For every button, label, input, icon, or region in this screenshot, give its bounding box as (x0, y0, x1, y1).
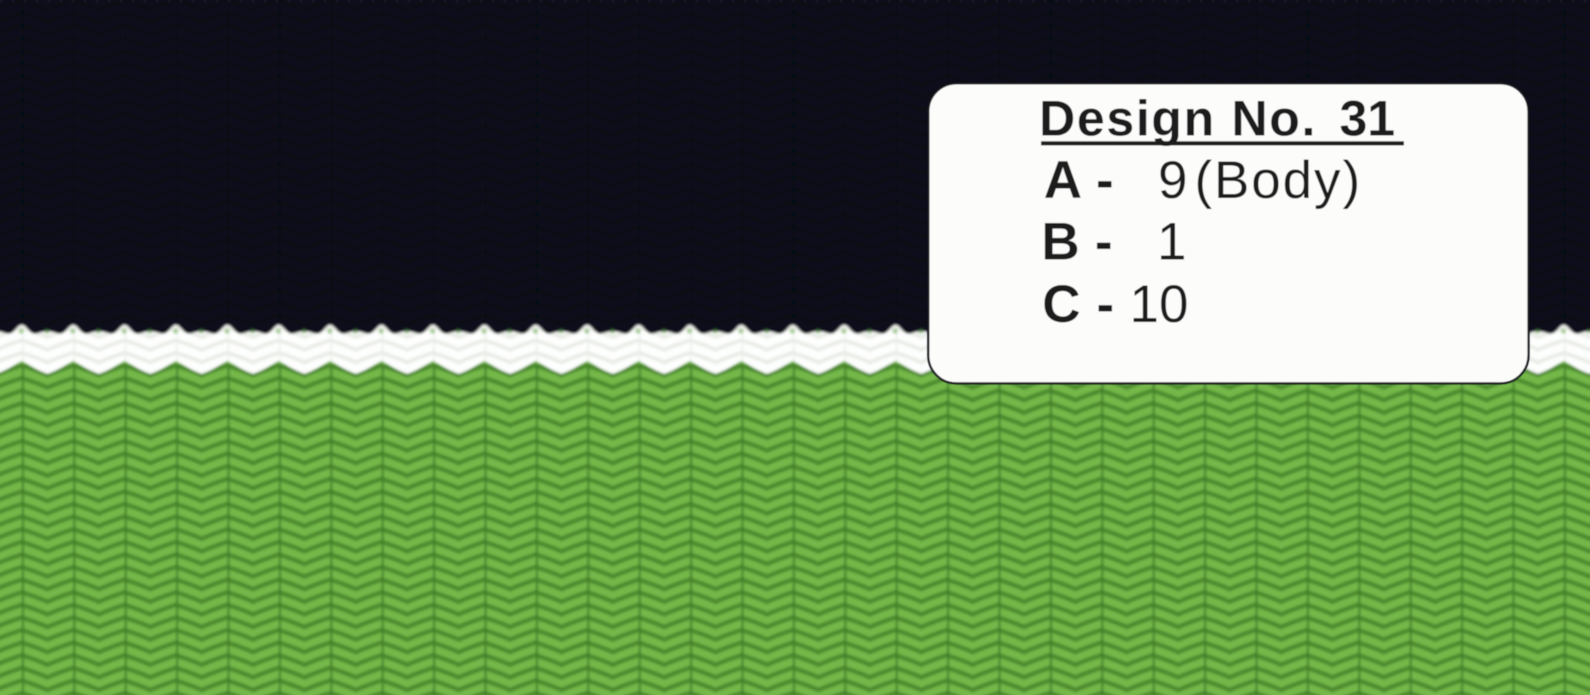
svg-text:C: C (1042, 275, 1080, 334)
svg-text:B: B (1041, 212, 1079, 271)
svg-text:(Body): (Body) (1195, 151, 1363, 210)
svg-text:31: 31 (1340, 90, 1396, 146)
svg-text:-: - (1097, 275, 1115, 334)
svg-text:1: 1 (1157, 212, 1186, 271)
svg-text:9: 9 (1158, 151, 1187, 210)
svg-text:-: - (1095, 212, 1113, 271)
svg-text:A: A (1044, 151, 1082, 210)
svg-text:Design No.: Design No. (1039, 90, 1317, 146)
svg-text:-: - (1096, 151, 1114, 210)
svg-text:10: 10 (1130, 275, 1189, 334)
